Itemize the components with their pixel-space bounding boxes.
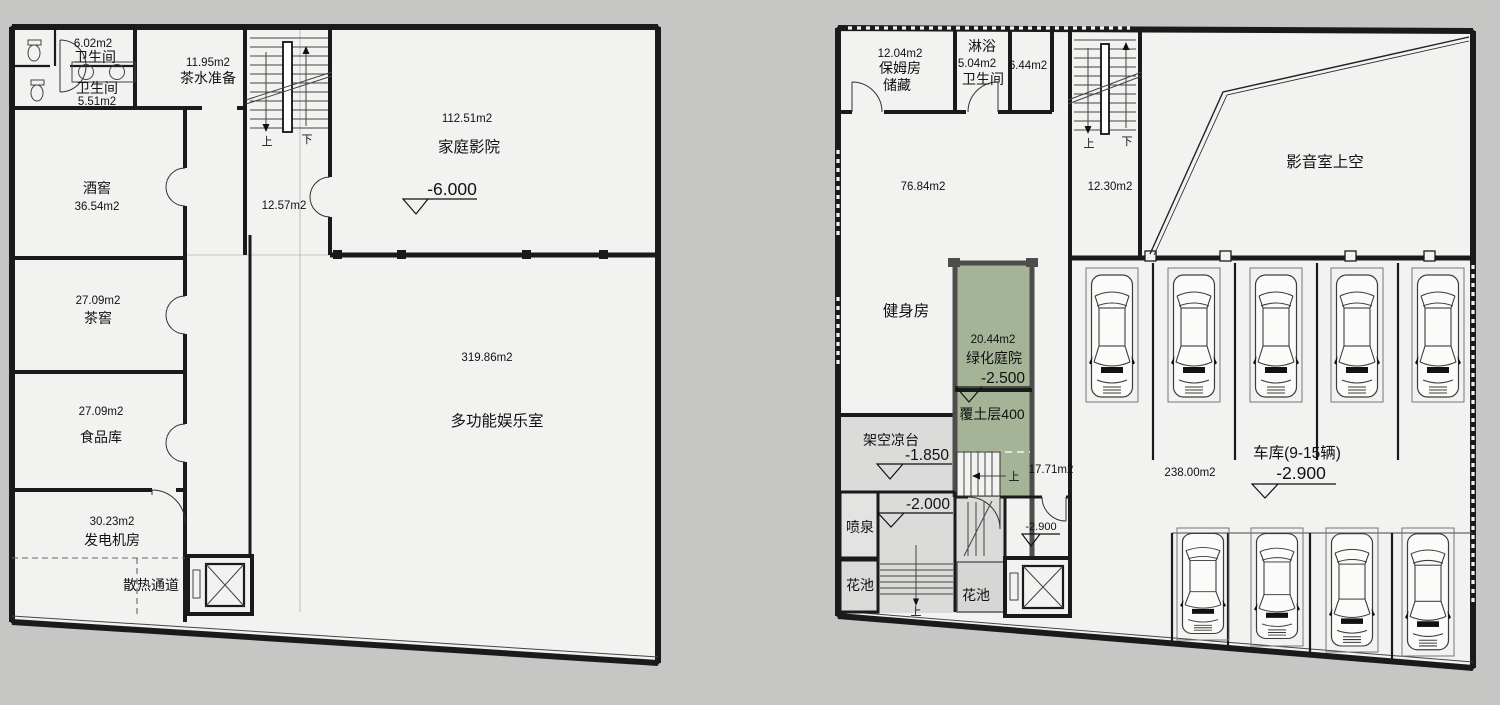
floorplan-canvas: 6.02m2 卫生间 卫生间 5.51m2 11.95m2 茶水准备 上 下 1… [0, 0, 1500, 705]
stair-down-label: 下 [302, 134, 313, 146]
garage-label: 车库(9-15辆) [1253, 444, 1341, 462]
wine-cellar-label: 酒窖 [83, 180, 111, 196]
courtyard-label: 绿化庭院 [966, 350, 1022, 366]
terrace-stair-up-label: 上 [911, 605, 922, 618]
fountain-label: 喷泉 [846, 519, 874, 535]
parked-car [1329, 534, 1375, 646]
right-floor-plan: 12.04m2 保姆房 储藏 淋浴 5.04m2 卫生间 6.44m2 76.8… [838, 28, 1473, 668]
nanny-label-1: 保姆房 [879, 60, 921, 76]
nanny-area: 12.04m2 [878, 48, 923, 60]
garage-level: -2.900 [1276, 463, 1326, 483]
terrace-level: -1.850 [905, 447, 949, 464]
garage-area: 238.00m2 [1164, 467, 1215, 479]
floorplan-drawing: 6.02m2 卫生间 卫生间 5.51m2 11.95m2 茶水准备 上 下 1… [0, 0, 1500, 705]
bath2-label: 卫生间 [76, 80, 118, 96]
bath2-area: 5.51m2 [78, 96, 116, 108]
parked-car [1180, 533, 1226, 633]
home-theater-label: 家庭影院 [438, 137, 500, 156]
parked-car [1405, 534, 1451, 650]
parked-car [1334, 275, 1380, 397]
courtyard-area: 20.44m2 [971, 334, 1016, 346]
parked-car [1171, 275, 1217, 397]
tea-prep-area: 11.95m2 [186, 57, 230, 69]
food-storage-label: 食品库 [80, 429, 122, 445]
shower-area: 5.04m2 [958, 58, 996, 70]
gym-label: 健身房 [883, 302, 930, 320]
tea-prep-label: 茶水准备 [180, 70, 236, 86]
parked-car [1089, 275, 1135, 397]
corridor-area: 12.30m2 [1088, 181, 1133, 193]
parked-car [1253, 275, 1299, 397]
stair-down-label: 下 [1122, 136, 1133, 148]
right-elevator-icon [1005, 558, 1070, 616]
shower-label: 淋浴 [968, 38, 996, 54]
flower-bed-left-label: 花池 [846, 577, 874, 593]
flower-bed-mid-label: 花池 [962, 587, 990, 603]
corridor-area: 12.57m2 [262, 200, 307, 212]
stair-up-label: 上 [262, 135, 273, 148]
wine-cellar-area: 36.54m2 [75, 201, 120, 213]
av-void-label: 影音室上空 [1286, 153, 1364, 171]
left-floor-plan: 6.02m2 卫生间 卫生间 5.51m2 11.95m2 茶水准备 上 下 1… [12, 27, 658, 663]
home-theater-area: 112.51m2 [442, 113, 492, 125]
food-storage-area: 27.09m2 [79, 406, 124, 418]
stair-up-label: 上 [1084, 137, 1095, 150]
rec-room-area: 319.86m2 [461, 352, 512, 364]
courtyard-level: -2.500 [981, 370, 1025, 387]
soil-note-label: 覆土层400 [959, 406, 1025, 422]
courtyard-stair-up-label: 上 [1009, 470, 1020, 483]
heat-channel-label: 散热通道 [123, 577, 179, 593]
terrace-label: 架空凉台 [863, 432, 919, 448]
room644-area: 6.44m2 [1009, 60, 1047, 72]
level-2000-label: -2.000 [906, 496, 950, 513]
nanny-label-2: 储藏 [883, 77, 911, 93]
generator-area: 30.23m2 [90, 516, 135, 528]
generator-label: 发电机房 [84, 532, 140, 548]
tea-cellar-label: 茶窖 [84, 310, 112, 326]
home-theater-level: -6.000 [427, 179, 477, 199]
room1771-area: 17.71m2 [1029, 464, 1074, 476]
parked-car [1415, 275, 1461, 397]
rec-room-label: 多功能娱乐室 [450, 412, 543, 430]
gym-area: 76.84m2 [901, 181, 946, 193]
left-elevator-icon [188, 556, 252, 614]
courtyard-stair [957, 452, 1006, 496]
level-2900-room-label: -2.900 [1025, 521, 1056, 533]
bath-label: 卫生间 [962, 71, 1004, 87]
tea-cellar-area: 27.09m2 [76, 295, 121, 307]
bath1-label: 卫生间 [74, 49, 116, 65]
parked-car [1254, 534, 1300, 639]
